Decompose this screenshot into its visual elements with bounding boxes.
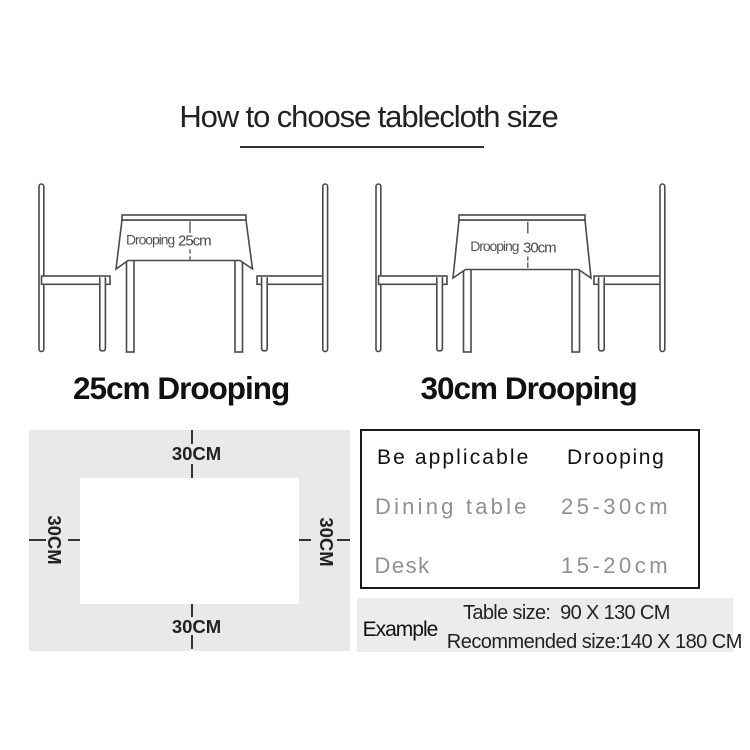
svg-text:30cm: 30cm <box>523 239 556 256</box>
svg-text:25cm: 25cm <box>178 233 211 250</box>
svg-text:Drooping: Drooping <box>470 238 518 254</box>
svg-text:Drooping: Drooping <box>126 232 174 248</box>
